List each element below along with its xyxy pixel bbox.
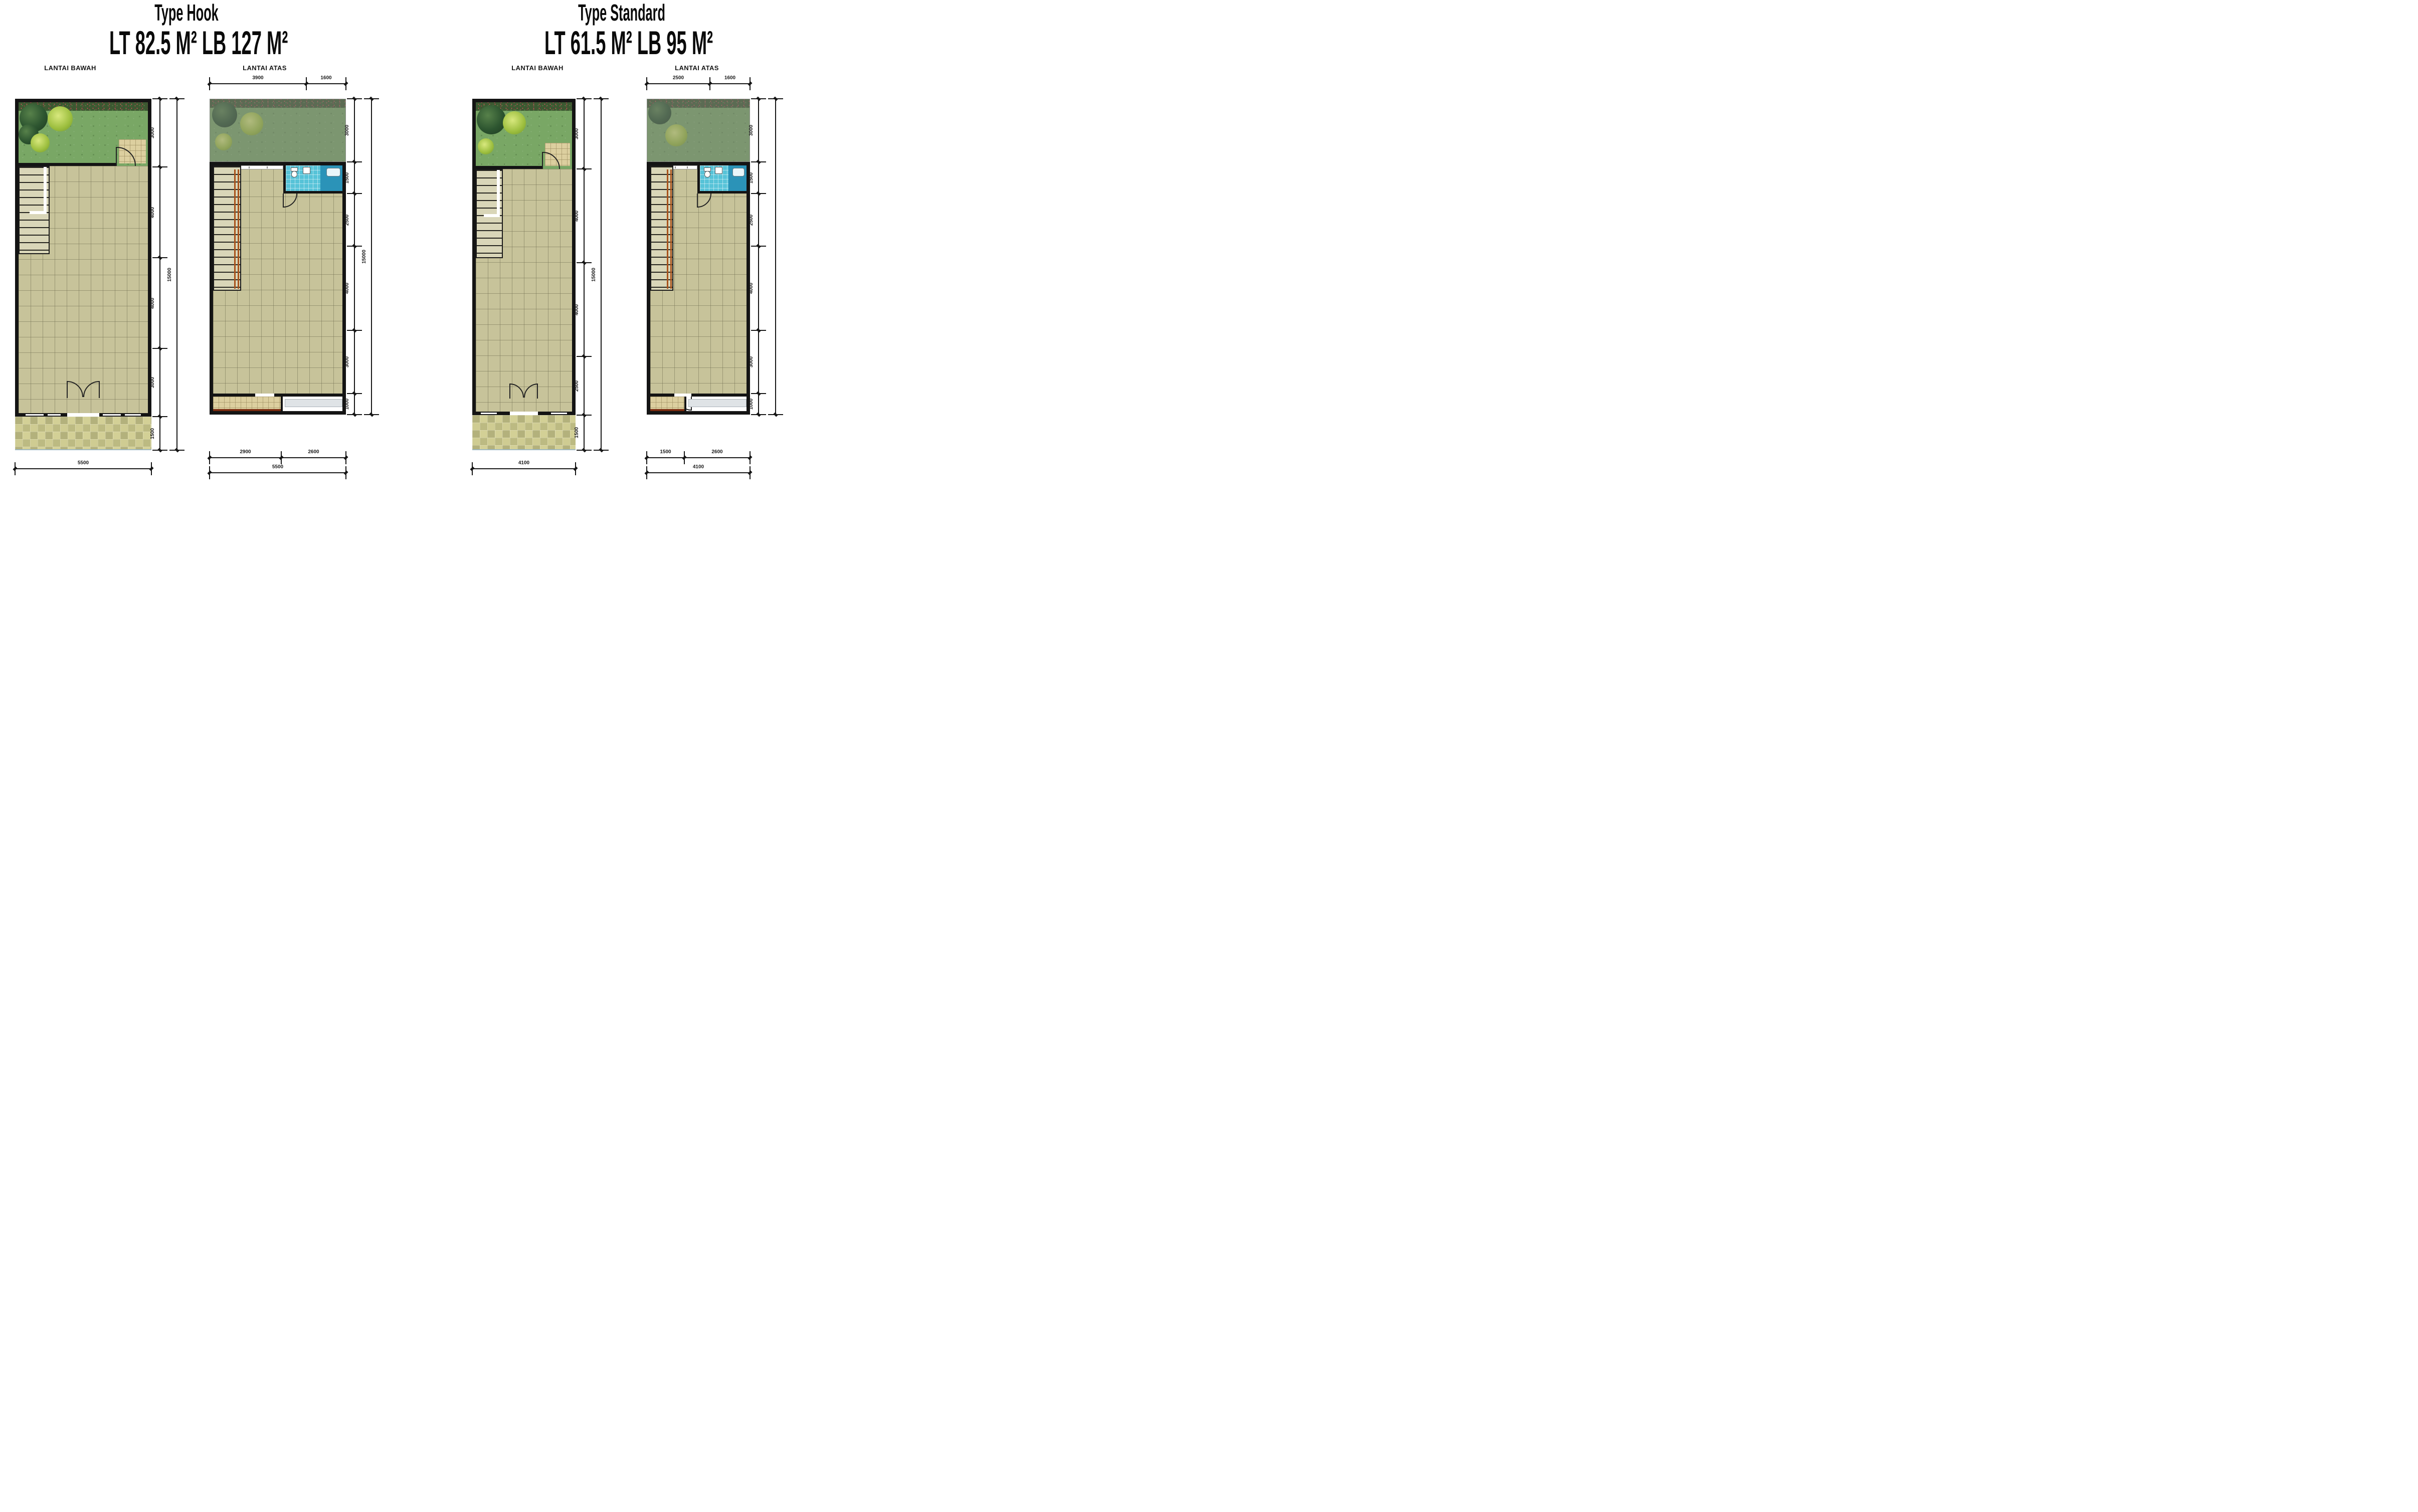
dimension-chain-hook-atas-bottom: 29002600 bbox=[210, 457, 346, 458]
dim-tick bbox=[751, 98, 766, 99]
dim-tick bbox=[594, 450, 609, 451]
dim-tick bbox=[364, 98, 379, 99]
toilet-icon bbox=[704, 167, 711, 177]
tree-icon bbox=[48, 106, 73, 131]
dim-label: 1600 bbox=[724, 76, 735, 81]
dimension-chain-hook-atas-top: 39001600 bbox=[210, 83, 346, 84]
tree-icon bbox=[503, 111, 526, 134]
house-outline bbox=[472, 99, 576, 415]
dim-tick bbox=[345, 466, 346, 479]
tree-icon bbox=[240, 112, 263, 135]
dimension-total-hook-bawah-right: 15000 bbox=[176, 99, 177, 450]
dim-label: 2500 bbox=[749, 214, 754, 225]
dim-tick bbox=[169, 98, 184, 99]
garden-area bbox=[210, 99, 346, 162]
floorplan-standard-lantai-atas bbox=[647, 99, 750, 415]
staircase bbox=[213, 165, 241, 291]
dimension-total-hook-atas-bottom: 5500 bbox=[210, 472, 346, 473]
dim-tick bbox=[594, 98, 609, 99]
dim-tick bbox=[152, 416, 167, 417]
tree-icon bbox=[212, 102, 237, 127]
dim-label: 2500 bbox=[673, 76, 684, 81]
stair-stringer bbox=[667, 169, 668, 289]
dim-label: 3000 bbox=[345, 356, 350, 367]
dim-label: 2500 bbox=[345, 214, 350, 225]
dim-label: 3000 bbox=[150, 127, 155, 138]
dim-tick bbox=[768, 414, 783, 415]
window bbox=[551, 412, 567, 415]
door-leaf bbox=[697, 194, 698, 208]
stair-railing bbox=[30, 211, 47, 214]
staircase bbox=[19, 166, 50, 254]
dim-tick bbox=[577, 98, 592, 99]
balcony-wall bbox=[684, 397, 686, 411]
dim-tick bbox=[152, 450, 167, 451]
tree-icon bbox=[477, 105, 506, 134]
dimension-chain-standard-atas-bottom: 15002600 bbox=[647, 457, 750, 458]
dim-tick bbox=[646, 466, 647, 479]
standard-lantai-atas-label: LANTAI ATAS bbox=[657, 64, 737, 72]
rear-wall bbox=[274, 394, 342, 397]
stair-stringer bbox=[234, 169, 236, 289]
dimension-chain-hook-bawah-right: 30004000400030001500 bbox=[159, 99, 160, 450]
dim-label: 4000 bbox=[150, 207, 155, 218]
dimension-total-standard-bawah-right: 15000 bbox=[601, 99, 602, 450]
dim-tick bbox=[152, 166, 167, 167]
window bbox=[48, 413, 61, 417]
rear-wall bbox=[691, 394, 747, 397]
planter-mark bbox=[675, 166, 676, 168]
dimension-chain-hook-atas-right: 300015002500400030001000 bbox=[354, 99, 355, 415]
balcony-wall bbox=[281, 397, 283, 411]
dim-label: 15000 bbox=[167, 268, 172, 282]
entry-door-opening bbox=[510, 412, 538, 415]
roof-ledge bbox=[285, 399, 342, 407]
dim-tick bbox=[209, 466, 210, 479]
standard-area-title: LT 61.5 M² LB 95 M² bbox=[544, 26, 699, 59]
terrace bbox=[472, 415, 576, 450]
dim-tick bbox=[15, 462, 16, 475]
dim-label: 1000 bbox=[749, 399, 754, 410]
dim-tick bbox=[347, 330, 362, 331]
dim-tick bbox=[750, 77, 751, 90]
dim-label: 4000 bbox=[345, 283, 350, 294]
door-leaf bbox=[542, 152, 543, 169]
dim-label: 3000 bbox=[345, 125, 350, 136]
shower-area bbox=[320, 165, 342, 191]
sink-icon bbox=[715, 167, 722, 174]
dim-label: 1500 bbox=[749, 172, 754, 183]
entry-door-opening bbox=[67, 413, 99, 417]
tree-icon bbox=[665, 124, 687, 146]
dim-tick bbox=[306, 77, 307, 90]
dim-label: 1000 bbox=[345, 399, 350, 410]
roof-ledge bbox=[688, 399, 747, 407]
window bbox=[125, 413, 141, 417]
sink-icon bbox=[303, 167, 310, 174]
standard-title: Type Standard bbox=[544, 1, 699, 24]
hook-lantai-bawah-label: LANTAI BAWAH bbox=[30, 64, 110, 72]
dim-tick bbox=[281, 451, 282, 464]
dimension-total-hook-atas-right: 15000 bbox=[371, 99, 372, 415]
dim-label: 1600 bbox=[320, 76, 331, 81]
balcony-edge bbox=[213, 409, 281, 411]
dim-tick bbox=[152, 348, 167, 349]
dim-label: 5500 bbox=[272, 465, 283, 470]
bathtub bbox=[732, 168, 745, 176]
dim-tick bbox=[472, 462, 473, 475]
dim-label: 1500 bbox=[660, 450, 671, 455]
dim-label: 4000 bbox=[150, 297, 155, 308]
staircase bbox=[476, 169, 503, 258]
dim-label: 1500 bbox=[345, 172, 350, 183]
tree-icon bbox=[215, 133, 232, 150]
dim-tick bbox=[646, 451, 647, 464]
shower-area bbox=[728, 165, 747, 191]
dim-label: 4100 bbox=[693, 465, 704, 470]
dim-label: 4000 bbox=[749, 283, 754, 294]
dim-tick bbox=[646, 77, 647, 90]
window bbox=[481, 412, 497, 415]
door-leaf bbox=[67, 381, 68, 398]
dim-label: 2500 bbox=[575, 380, 580, 391]
dim-tick bbox=[347, 393, 362, 394]
dim-tick bbox=[169, 450, 184, 451]
bathroom bbox=[283, 165, 342, 194]
dim-label: 2600 bbox=[711, 450, 722, 455]
stair-railing bbox=[44, 167, 47, 214]
balcony-edge bbox=[650, 409, 684, 411]
dim-tick bbox=[347, 414, 362, 415]
dim-tick bbox=[577, 356, 592, 357]
window bbox=[26, 413, 44, 417]
dim-tick bbox=[751, 161, 766, 162]
hook-area-title: LT 82.5 M² LB 127 M² bbox=[109, 26, 264, 59]
dim-label: 4000 bbox=[575, 304, 580, 315]
planter-mark bbox=[687, 166, 688, 168]
dim-label: 3900 bbox=[252, 76, 263, 81]
door-leaf bbox=[509, 384, 510, 399]
upper-floor-outline bbox=[210, 162, 346, 415]
floorplan-hook-lantai-bawah bbox=[15, 99, 151, 450]
dim-tick bbox=[768, 98, 783, 99]
tree-icon bbox=[31, 133, 50, 152]
dim-tick bbox=[364, 414, 379, 415]
toilet-icon bbox=[291, 167, 298, 177]
tree-icon bbox=[478, 138, 494, 154]
floorplan-hook-lantai-atas bbox=[210, 99, 346, 415]
dim-tick bbox=[152, 98, 167, 99]
dim-tick bbox=[347, 246, 362, 247]
upper-floor-outline bbox=[647, 162, 750, 415]
dim-label: 2600 bbox=[308, 450, 319, 455]
dim-tick bbox=[209, 77, 210, 90]
dimension-standard-bawah-bottom: 4100 bbox=[472, 468, 576, 469]
dim-tick bbox=[209, 451, 210, 464]
dim-label: 3000 bbox=[749, 356, 754, 367]
dimension-chain-standard-bawah-right: 30004000400025001500 bbox=[584, 99, 585, 450]
dim-label: 4100 bbox=[518, 461, 529, 466]
dim-label: 2900 bbox=[240, 450, 251, 455]
stair-railing bbox=[497, 170, 500, 217]
flower-hedge bbox=[647, 99, 750, 108]
stair-stringer bbox=[670, 169, 672, 289]
dim-tick bbox=[347, 98, 362, 99]
dim-tick bbox=[347, 161, 362, 162]
door-leaf bbox=[116, 147, 117, 166]
dim-tick bbox=[152, 257, 167, 258]
hook-title: Type Hook bbox=[109, 1, 264, 24]
dimension-chain-standard-atas-top: 25001600 bbox=[647, 83, 750, 84]
dim-tick bbox=[751, 246, 766, 247]
window bbox=[103, 413, 121, 417]
dim-tick bbox=[347, 193, 362, 194]
dim-tick bbox=[751, 414, 766, 415]
floorplan-standard-lantai-bawah bbox=[472, 99, 576, 450]
dim-tick bbox=[750, 466, 751, 479]
planter-mark bbox=[267, 166, 268, 168]
staircase bbox=[650, 165, 673, 291]
dimension-hook-bawah-bottom: 5500 bbox=[15, 468, 151, 469]
dim-tick bbox=[751, 393, 766, 394]
dim-tick bbox=[345, 77, 346, 90]
dim-label: 3000 bbox=[749, 125, 754, 136]
tree-icon bbox=[648, 101, 671, 124]
dim-tick bbox=[575, 462, 576, 475]
dim-tick bbox=[345, 451, 346, 464]
house-outline bbox=[15, 99, 151, 417]
dimension-chain-standard-atas-right: 300015002500400030001000 bbox=[758, 99, 759, 415]
dim-tick bbox=[751, 193, 766, 194]
stair-stringer bbox=[238, 169, 239, 289]
dim-tick bbox=[684, 451, 685, 464]
standard-lantai-bawah-label: LANTAI BAWAH bbox=[497, 64, 578, 72]
dim-tick bbox=[577, 168, 592, 169]
dim-tick bbox=[709, 77, 710, 90]
door-leaf bbox=[99, 381, 100, 398]
dim-label: 3000 bbox=[150, 377, 155, 388]
dim-label: 3000 bbox=[575, 128, 580, 139]
dim-tick bbox=[751, 330, 766, 331]
dim-tick bbox=[577, 450, 592, 451]
planter-mark bbox=[249, 166, 250, 168]
door-leaf bbox=[537, 384, 538, 399]
dim-label: 4000 bbox=[575, 210, 580, 221]
garden-area bbox=[647, 99, 750, 162]
dim-label: 5500 bbox=[78, 461, 89, 466]
dim-tick bbox=[151, 462, 152, 475]
dim-label: 15000 bbox=[592, 268, 597, 282]
stair-railing bbox=[484, 214, 500, 217]
dim-label: 15000 bbox=[362, 250, 367, 264]
bathtub bbox=[326, 168, 340, 176]
door-leaf bbox=[283, 194, 284, 208]
terrace bbox=[15, 417, 151, 450]
dim-tick bbox=[577, 262, 592, 263]
dimension-total-standard-atas-bottom: 4100 bbox=[647, 472, 750, 473]
flower-hedge bbox=[210, 99, 345, 108]
dim-label: 1500 bbox=[150, 428, 155, 439]
dim-tick bbox=[750, 451, 751, 464]
hook-lantai-atas-label: LANTAI ATAS bbox=[225, 64, 305, 72]
dimension-outer-standard-atas-right bbox=[775, 99, 776, 415]
bathroom bbox=[697, 165, 747, 194]
dim-tick bbox=[577, 415, 592, 416]
floorplan-sheet: Type Hook LT 82.5 M² LB 127 M² LANTAI BA… bbox=[0, 0, 806, 504]
dim-label: 1500 bbox=[575, 427, 580, 438]
